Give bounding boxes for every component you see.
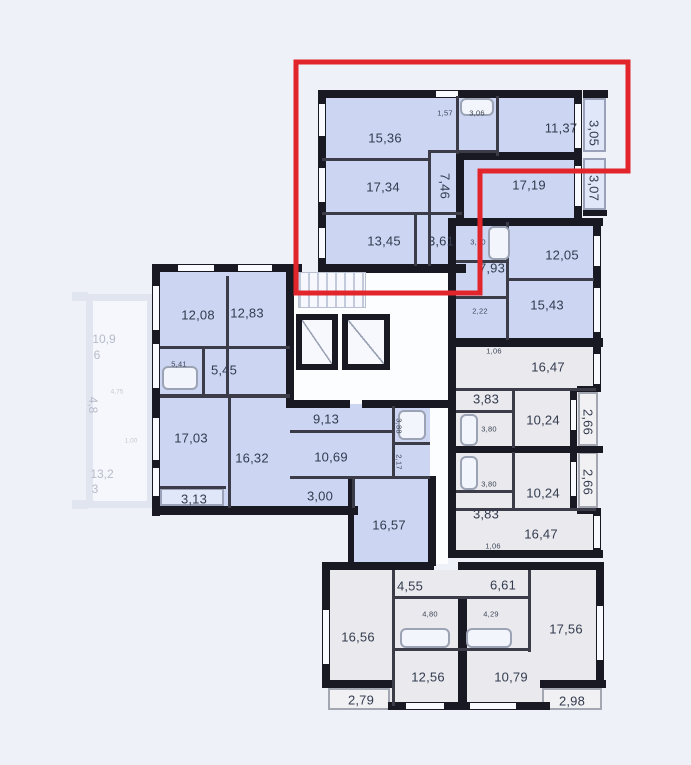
partition [428,152,431,266]
partition [392,570,395,706]
area-label-5-45: 5,45 [211,363,237,378]
bathtub-icon [162,366,198,390]
bathtub-icon [400,628,450,648]
wall-segment [540,680,606,688]
area-label-4-55: 4,55 [397,579,423,594]
area-label-2-17: 2,17 [395,454,404,469]
partition [392,442,430,445]
window-opening [470,703,516,709]
area-label-3-61: 3,61 [428,234,454,249]
area-label-3-88: 3,88 [395,418,404,433]
area-label-6-61: 6,61 [490,578,516,593]
ghost-area-label-4-8: 4,8 [86,397,100,414]
area-label-9-13: 9,13 [313,412,339,427]
wall-segment [456,152,576,160]
partition [392,596,528,599]
ghost-floor-label-6: 6 [94,348,101,362]
wall-segment [458,598,467,708]
partition [352,478,355,508]
partition [528,570,531,652]
window-opening [178,265,214,271]
area-label-16-47-lower: 16,47 [524,527,558,542]
partition [322,158,428,161]
adjacent-building-wall-stub [72,292,88,301]
window-opening [153,468,159,496]
bathtub-icon [460,456,478,490]
area-label-10-24-upper: 10,24 [526,413,560,428]
partition [322,212,462,215]
area-label-3-05: 3,05 [587,120,602,146]
area-label-7-93: 7,93 [479,261,505,276]
floor-plan: 15,36 17,34 13,45 3,61 7,46 1,57 3,06 11… [0,0,691,765]
wall-segment [152,264,302,272]
area-label-4-80: 4,80 [422,610,437,619]
partition [506,278,594,281]
area-label-2-66-lower: 2,66 [581,469,596,495]
area-label-3-80-upper: 3,80 [481,425,496,434]
area-label-5-41: 5,41 [171,360,186,369]
wall-segment [448,218,456,558]
wall-segment [448,550,603,558]
window-opening [571,400,576,430]
staircase [298,272,366,308]
area-label-13-45: 13,45 [367,234,401,249]
area-label-12-08: 12,08 [181,308,215,323]
area-label-10-24-lower: 10,24 [526,486,560,501]
adjacent-building-wall-stub [72,500,88,509]
window-opening [575,166,581,206]
wall-segment [286,400,350,408]
elevator-shaft [296,314,338,370]
wall-segment [577,446,599,452]
partition [512,390,515,448]
window-opening [594,288,600,332]
window-opening [594,516,600,548]
area-label-17-34: 17,34 [366,180,400,195]
partition [496,96,499,156]
area-label-3-00: 3,00 [307,489,333,504]
area-label-3-13: 3,13 [181,492,207,507]
partition [160,486,226,489]
window-opening [319,104,325,136]
area-label-16-57: 16,57 [372,518,406,533]
window-opening [571,462,576,496]
area-label-11-37: 11,37 [545,121,578,136]
ghost-area-label-13-2: 13,2 [90,467,113,481]
partition [226,276,229,398]
elevator-shaft [342,314,390,370]
window-opening [594,236,600,266]
bathtub-icon [466,628,512,648]
area-label-10-79: 10,79 [494,670,528,685]
area-label-16-32: 16,32 [235,451,269,466]
partition [160,394,290,398]
area-label-12-56: 12,56 [411,670,445,685]
wall-segment [583,210,607,216]
bathtub-icon [488,226,510,260]
ghost-dim-label-1-00: 1,00 [125,438,138,445]
wall-segment [448,218,603,226]
wall-segment [448,338,603,347]
window-opening [238,265,272,271]
partition [456,96,459,154]
wall-segment [152,506,358,515]
partition [456,490,512,493]
wall-segment [583,90,608,98]
area-label-12-05: 12,05 [545,248,579,263]
area-label-1-06-upper: 1,06 [486,347,501,356]
ghost-floor-label-3: 3 [92,482,99,496]
partition [352,476,430,479]
wall-segment [322,680,394,688]
area-label-1-57: 1,57 [437,109,452,118]
partition [512,452,515,510]
partition [456,296,506,299]
ghost-area-label-10-9: 10,9 [92,332,115,346]
window-opening [153,286,159,330]
area-label-2-66-upper: 2,66 [581,409,596,435]
partition [160,346,290,349]
wall-segment [286,264,294,408]
partition [456,410,512,413]
window-opening [153,344,159,388]
area-label-16-47-upper: 16,47 [531,360,565,375]
area-label-17-03: 17,03 [174,431,208,446]
area-label-15-36: 15,36 [368,131,402,146]
area-label-7-46: 7,46 [438,173,453,199]
partition [428,150,498,153]
area-label-10-69: 10,69 [314,450,348,465]
area-label-3-10: 3,10 [470,238,485,247]
window-opening [597,606,603,660]
area-label-16-56: 16,56 [341,630,375,645]
partition [202,348,205,398]
ghost-dim-label-4-75: 4,75 [111,389,124,396]
window-opening [436,91,458,97]
partition [392,648,528,651]
area-label-2-79: 2,79 [348,693,374,708]
area-label-2-22: 2,22 [472,307,487,316]
window-opening [594,354,600,384]
partition [228,398,231,508]
area-label-3-83-upper: 3,83 [473,392,499,407]
partition [290,430,394,433]
area-label-3-06: 3,06 [469,109,484,118]
wall-segment [322,562,434,570]
area-label-4-29: 4,29 [483,610,498,619]
area-label-3-80-lower: 3,80 [481,480,496,489]
area-label-17-19: 17,19 [512,178,546,193]
window-opening [323,610,329,664]
wall-segment [362,400,448,408]
bathtub-icon [460,414,478,446]
area-label-17-56: 17,56 [549,622,583,637]
window-opening [319,228,325,258]
window-opening [319,168,325,202]
area-label-1-06-lower: 1,06 [485,542,500,551]
area-label-2-98: 2,98 [559,694,585,709]
area-label-3-07: 3,07 [587,175,602,201]
wall-segment [458,562,604,570]
partition [414,214,417,266]
window-opening [153,418,159,460]
area-label-12-83: 12,83 [230,306,264,321]
window-opening [406,703,444,709]
area-label-3-83-lower: 3,83 [473,507,499,522]
wall-segment [428,476,436,566]
area-label-15-43: 15,43 [530,298,564,313]
